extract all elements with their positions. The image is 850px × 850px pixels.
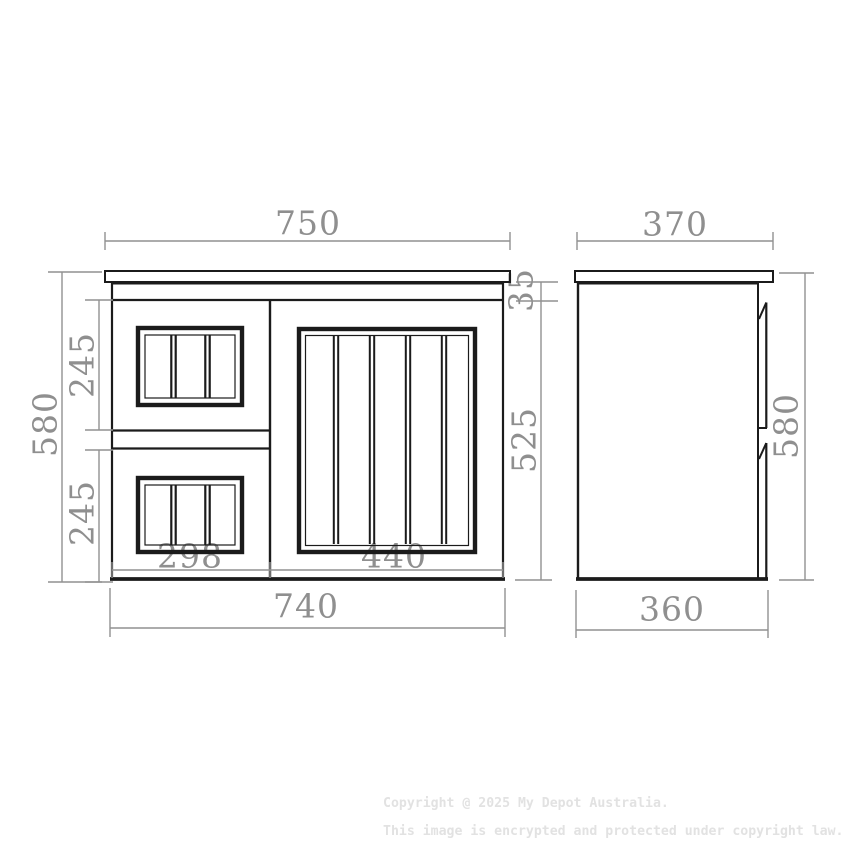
technical-drawing-page: 750 370 580 245 245 35 525 298 440 740 5… <box>0 0 850 850</box>
dim-label-front-top-width: 750 <box>275 204 341 243</box>
dim-label-body-height: 525 <box>505 407 544 473</box>
dim-label-door-width: 440 <box>361 537 427 576</box>
dim-label-upper-drawer-height: 245 <box>63 332 102 398</box>
dim-label-front-overall-height: 580 <box>26 391 65 457</box>
dim-label-lower-drawer-height: 245 <box>63 480 102 546</box>
dim-label-top-rail-height: 35 <box>502 268 541 312</box>
dim-label-side-top-depth: 370 <box>642 205 708 244</box>
dim-label-side-bottom-depth: 360 <box>639 590 705 629</box>
dim-label-front-bottom-width: 740 <box>273 587 339 626</box>
dimension-labels: 750 370 580 245 245 35 525 298 440 740 5… <box>0 0 850 850</box>
dim-label-drawer-width: 298 <box>157 537 223 576</box>
dim-label-side-overall-height: 580 <box>767 393 806 459</box>
